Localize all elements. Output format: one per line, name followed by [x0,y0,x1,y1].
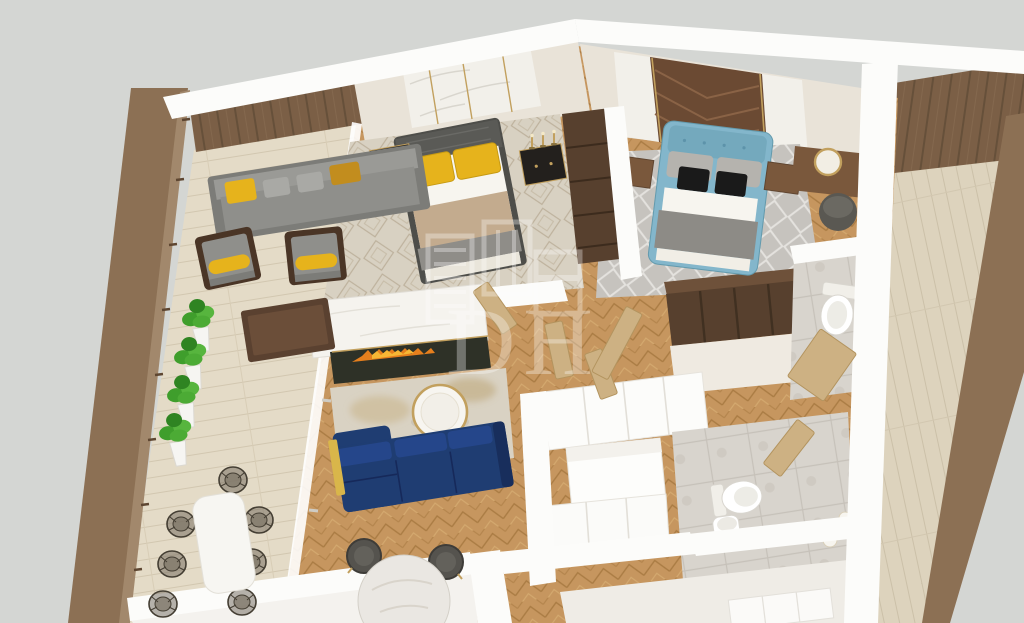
outdoor-armchair [284,226,347,286]
watermark-letters: DH [446,288,601,395]
pouf-top [823,196,853,218]
black-pillow [676,166,710,193]
master-nightstand-right [519,144,566,186]
black-pillow [714,171,748,198]
second-bed [647,120,774,276]
storage-cube [762,592,799,623]
floorplan-render: DH [0,0,1024,623]
vanity-chair [815,149,841,175]
storage-cube [728,596,765,623]
coffee-table-top [421,393,459,431]
pillow-yellow [224,178,257,204]
storage-cube [796,588,833,622]
